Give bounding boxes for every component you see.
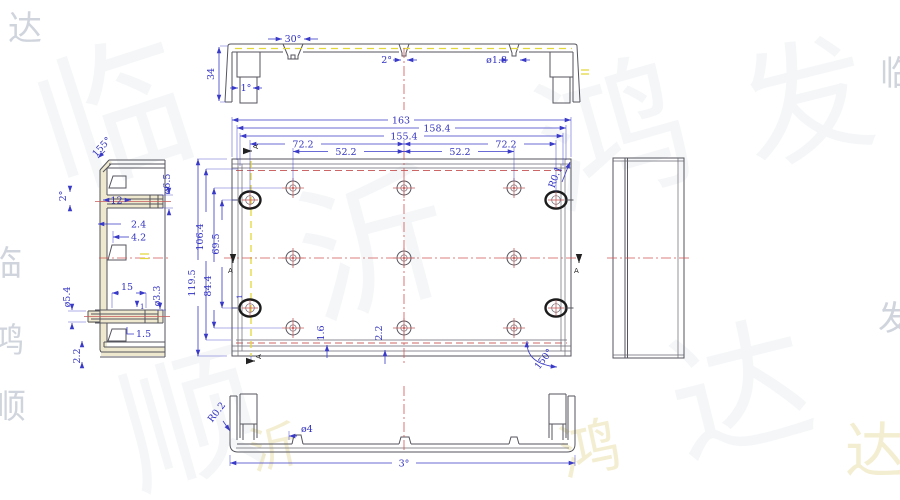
dim-1: 1: [236, 295, 244, 299]
dim-1deg: 1°: [241, 83, 252, 94]
section-label: A: [574, 267, 579, 275]
dim-1-5: 1.5: [136, 329, 151, 340]
dim-106-4: 106.4: [195, 223, 206, 250]
dim-2-2: 2.2: [374, 325, 385, 340]
dim-158-4: 158.4: [423, 124, 450, 135]
dim-72-2-left: 72.2: [292, 140, 313, 151]
dim-4-2: 4.2: [131, 233, 146, 244]
cad-drawing-canvas: 临 沂 鸿 达 顺 发 达 临 鸿 顺 临 发 鸿 达 沂: [0, 0, 900, 500]
dim-30deg: 30°: [285, 34, 302, 45]
dim-119-5: 119.5: [187, 269, 198, 296]
dim-163: 163: [392, 116, 410, 127]
watermark-char: 鸿: [0, 321, 24, 361]
dim-52-2-right: 52.2: [449, 147, 470, 158]
boss-corner: [546, 300, 574, 317]
section-label: A: [252, 144, 260, 149]
dim-dia4: ø4: [301, 424, 313, 435]
watermark-char: 达: [8, 9, 42, 49]
dim-dia3-3: ø3.3: [152, 286, 163, 307]
watermark-char: 临: [880, 54, 900, 94]
cad-drawing: 临 沂 鸿 达 顺 发 达 临 鸿 顺 临 发 鸿 达 沂: [0, 0, 900, 500]
watermark: 临 沂 鸿 达 顺 发 达 临 鸿 顺 临 发 鸿 达 沂: [0, 9, 900, 500]
dim-15: 15: [121, 282, 133, 293]
watermark-char: 鸿: [518, 33, 710, 242]
dim-dia6-5: ø6.5: [162, 174, 173, 195]
dim-dia5-4: ø5.4: [62, 287, 73, 308]
watermark-char: 临: [16, 12, 212, 224]
dim-1-6: 1.6: [316, 325, 327, 340]
dim-12: 12: [110, 196, 122, 207]
dim-34: 34: [206, 68, 217, 80]
dim-84-4: 84.4: [203, 275, 214, 296]
dim-1-side: 1: [140, 303, 144, 311]
dim-3deg: 3°: [399, 459, 410, 470]
boss-small: [503, 248, 525, 268]
section-label: A: [228, 267, 233, 275]
dim-52-2-left: 52.2: [335, 147, 356, 158]
watermark-char: 鸿: [553, 410, 626, 491]
dim-dia1-8: ø1.8: [486, 55, 507, 66]
boss-small: [503, 318, 525, 338]
section-label: A: [255, 354, 263, 359]
watermark-char: 发: [725, 14, 888, 193]
watermark-char: 达: [653, 296, 828, 488]
dim-72-2-right: 72.2: [495, 140, 516, 151]
watermark-char: 发: [878, 299, 900, 339]
watermark-char: 达: [845, 417, 900, 487]
dim-2deg-side: 2°: [58, 191, 69, 202]
dim-2-4: 2.4: [131, 220, 146, 231]
dim-69-5: 69.5: [211, 233, 222, 254]
watermark-char: 临: [0, 244, 22, 284]
dim-155-4: 155.4: [390, 132, 417, 143]
boss-small: [282, 318, 304, 338]
watermark-char: 顺: [0, 387, 26, 427]
watermark-char: 沂: [280, 144, 470, 351]
dim-2-2-side: 2.2: [72, 348, 83, 363]
dim-2deg: 2°: [381, 55, 392, 66]
